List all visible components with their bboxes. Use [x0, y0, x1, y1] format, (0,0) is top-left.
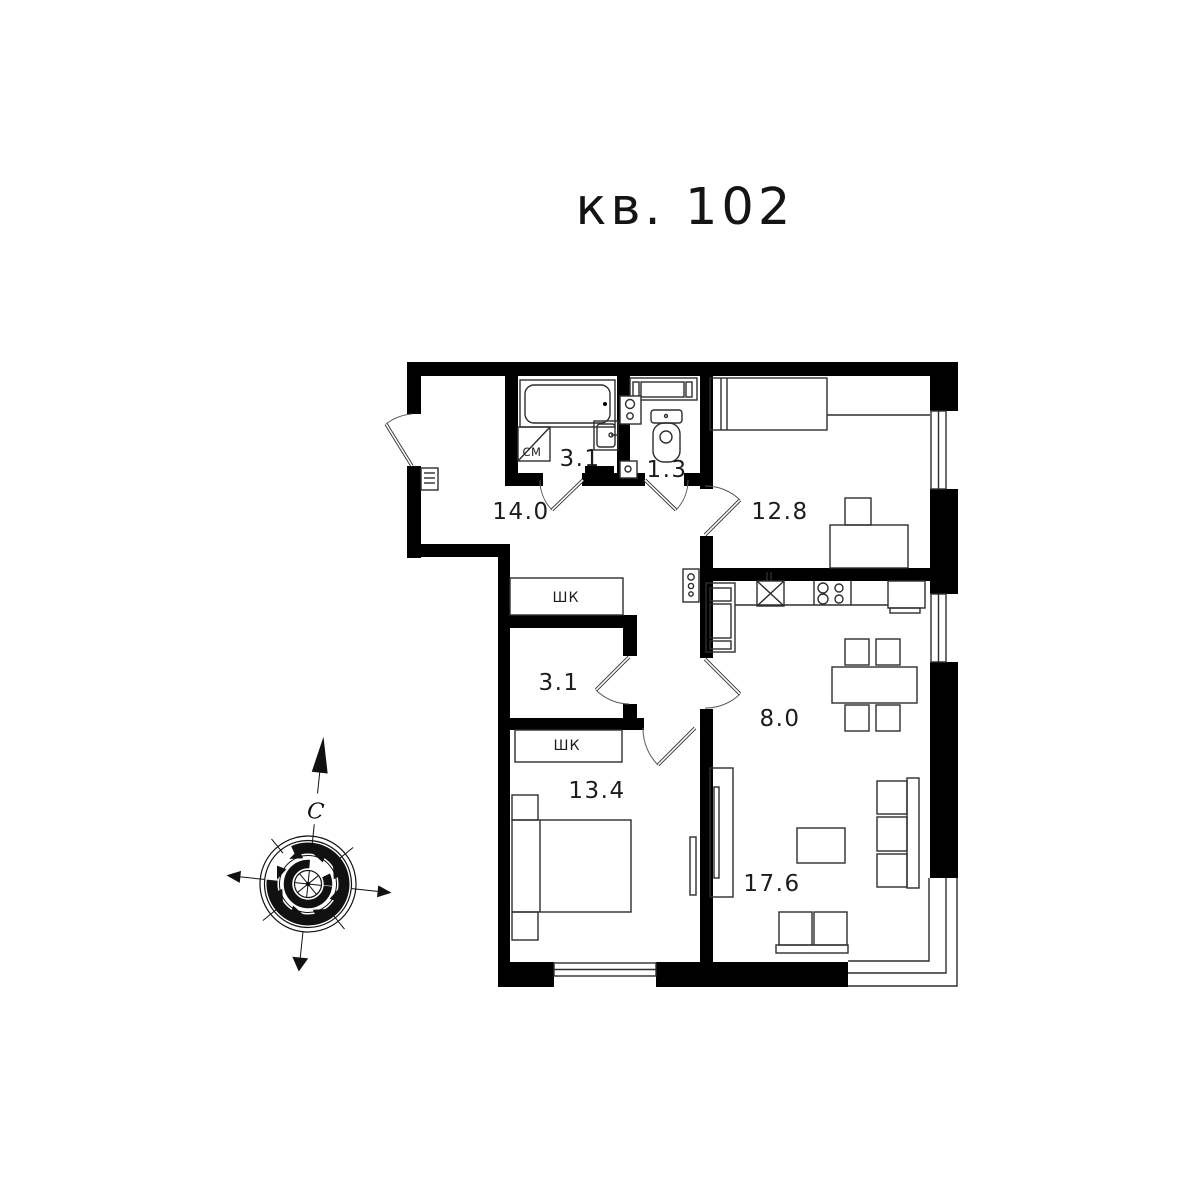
- double-bed: [512, 820, 631, 912]
- south-arrowhead: [291, 957, 308, 973]
- dining-chair-1: [845, 639, 869, 665]
- wall-bedroom1-top: [498, 718, 644, 730]
- west-arrowhead: [226, 869, 241, 882]
- entrance-door-leaf-inner: [386, 424, 412, 466]
- fridge-top-section: [710, 588, 731, 601]
- balcony-outline: [848, 878, 957, 986]
- wall-top: [407, 362, 958, 376]
- room-label-bathroom: 3.1: [559, 446, 600, 472]
- bedroom1-door-arc: [643, 728, 658, 765]
- east-arrowhead: [377, 885, 392, 898]
- wall-kitchen-bedroom2-divider: [700, 568, 930, 581]
- bathtub-drain: [603, 402, 607, 406]
- wc-shelf-inner: [641, 382, 684, 397]
- room-label-kitchen: 8.0: [759, 706, 800, 732]
- loveseat-seat-1: [779, 912, 812, 945]
- loveseat-base: [776, 945, 848, 953]
- fridge-mid-section: [710, 604, 731, 638]
- corridor-door-leaf-inner: [596, 657, 629, 690]
- kitchen-door-arc: [705, 694, 740, 708]
- north-line-upper: [318, 773, 320, 794]
- wall-right-top: [930, 362, 958, 411]
- bedroom1-door-leaf-inner: [658, 728, 695, 765]
- kitchen-door-leaf-inner: [705, 659, 740, 694]
- burner-1: [818, 583, 828, 593]
- wall-left-lower: [498, 544, 510, 987]
- bedroom1-furniture: [510, 578, 696, 940]
- kitchen-cabinet: [888, 581, 925, 608]
- wc-door: [645, 480, 688, 510]
- label-washing-machine: СМ: [523, 445, 542, 459]
- balcony-line-mid: [848, 878, 946, 973]
- bathroom-door-leaf-inner: [552, 480, 583, 510]
- room-label-wc: 1.3: [646, 457, 687, 483]
- dining-chair-4: [876, 705, 900, 731]
- wc-shelf-left: [633, 382, 639, 397]
- nightstand-bottom: [512, 912, 538, 940]
- label-closet-lower: ШК: [554, 738, 581, 754]
- corridor-door: [596, 657, 629, 704]
- walls: [407, 362, 958, 987]
- wall-corridor-stub: [623, 704, 637, 718]
- page-title: кв. 102: [576, 178, 795, 237]
- wall-corridor-right: [623, 622, 637, 656]
- wall-bottom-left: [498, 962, 554, 987]
- coffee-table: [797, 828, 845, 863]
- wall-right-mid: [930, 489, 958, 594]
- wall-left-upper: [407, 362, 421, 414]
- bedroom2-furniture: [710, 378, 930, 568]
- room-label-bedroom2: 12.8: [751, 499, 808, 525]
- intercom-panel: [421, 468, 438, 490]
- compass-north-arrow: С: [303, 736, 332, 849]
- wall-left-step: [407, 544, 510, 557]
- room-label-living: 17.6: [743, 871, 800, 897]
- burner-2: [835, 584, 843, 592]
- hallway-fixtures: [421, 468, 438, 490]
- compass-north-label: С: [306, 799, 326, 826]
- bathtub: [520, 380, 615, 427]
- north-arrowhead: [312, 736, 332, 773]
- loveseat-seat-2: [814, 912, 847, 945]
- desk: [830, 525, 908, 568]
- bathtub-inner: [525, 385, 610, 423]
- wc-vent-box-2: [620, 461, 637, 478]
- desk-chair: [845, 498, 871, 525]
- room-label-bedroom1: 13.4: [568, 778, 625, 804]
- burner-3: [818, 594, 828, 604]
- room-label-corridor: 3.1: [538, 670, 579, 696]
- bedroom-tv: [690, 837, 696, 895]
- compass: С: [217, 728, 407, 980]
- wall-bath-bottom-left: [505, 473, 543, 486]
- wall-right-lower: [930, 662, 958, 878]
- wall-bedroom-living-divider: [700, 709, 713, 962]
- south-line: [300, 932, 303, 958]
- bedroom2-door: [705, 486, 740, 535]
- entrance-door-arc: [386, 414, 412, 424]
- dining-chair-3: [845, 705, 869, 731]
- wall-closet-corridor: [498, 615, 637, 628]
- dining-table: [832, 667, 917, 703]
- wall-wc-right: [700, 376, 713, 489]
- wc-shelf-right: [686, 382, 692, 397]
- nightstand-top: [512, 795, 538, 820]
- kitchen-door: [705, 659, 740, 708]
- kitchen-cabinet-lip: [890, 608, 920, 613]
- wc-door-leaf-inner: [645, 480, 676, 510]
- tv-screen: [714, 787, 719, 878]
- wall-bath-left: [505, 376, 518, 486]
- bedroom1-door: [643, 728, 695, 765]
- burner-4: [835, 595, 843, 603]
- living-furniture: [710, 768, 919, 953]
- compass-hub-spokes: [294, 870, 323, 899]
- living-glazing-line: [848, 878, 929, 961]
- balcony-line-outer: [848, 878, 957, 986]
- room-label-hallway: 14.0: [492, 499, 549, 525]
- toilet-tank: [651, 410, 682, 423]
- toilet-button: [665, 415, 668, 418]
- fridge-bottom-section: [710, 641, 731, 649]
- toilet-bowl-inner: [660, 431, 672, 443]
- corridor-door-arc: [596, 690, 629, 704]
- wall-bottom-center: [656, 962, 848, 987]
- floor-plan-page: кв. 102: [0, 0, 1200, 1200]
- floor-plan-canvas: кв. 102: [0, 0, 1200, 1200]
- bedroom2-door-leaf-inner: [705, 500, 740, 535]
- entrance-door: [386, 414, 412, 466]
- sofa-seat-2: [877, 817, 907, 851]
- label-closet-upper: ШК: [553, 590, 580, 606]
- sofa-seat-1: [877, 781, 907, 814]
- sofa-backrest: [907, 778, 919, 888]
- dining-chair-2: [876, 639, 900, 665]
- sofa-seat-3: [877, 854, 907, 887]
